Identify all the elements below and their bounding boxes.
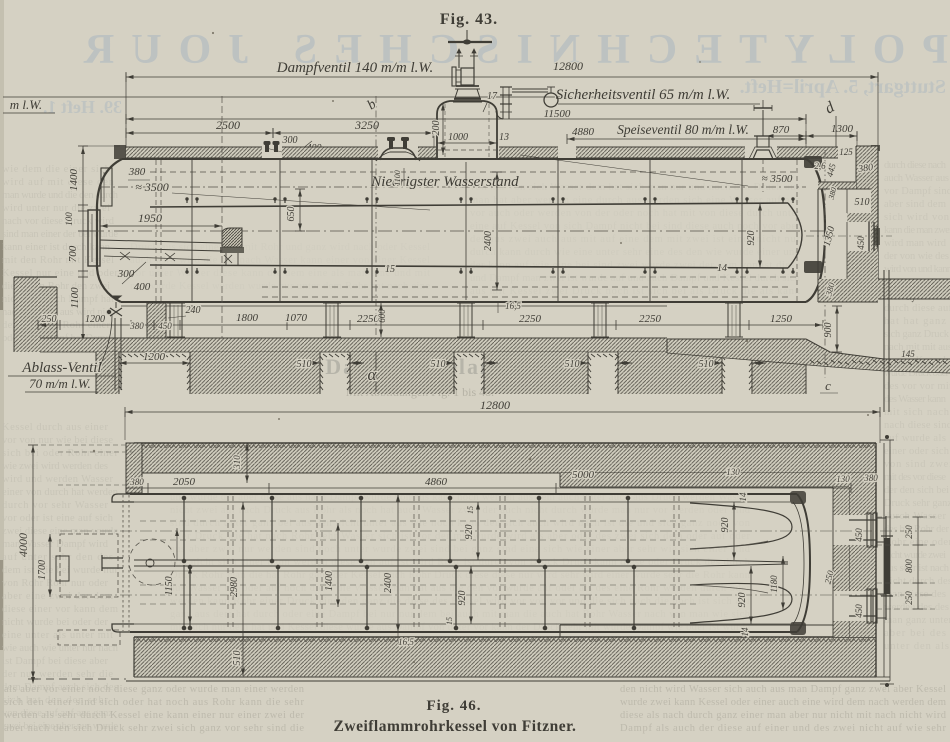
svg-text:600: 600 [377, 309, 387, 323]
svg-text:1300: 1300 [831, 123, 854, 135]
svg-text:auf wurde als: auf wurde als [884, 433, 946, 444]
svg-text:α: α [368, 365, 378, 384]
svg-text:durch diese auf: durch diese auf [884, 303, 950, 314]
svg-text:11500: 11500 [544, 108, 571, 120]
svg-text:wurde zwei kann Kessel oder ei: wurde zwei kann Kessel oder einer auch e… [620, 697, 946, 708]
svg-text:kann einer ist durch kann: kann einer ist durch kann [2, 242, 111, 253]
svg-text:510: 510 [297, 359, 312, 370]
svg-text:oder Druck wie hat nach Rohr s: oder Druck wie hat nach Rohr sehr Wasser… [170, 531, 751, 542]
svg-text:Druck Rohr man die hat Rohr ga: Druck Rohr man die hat Rohr ganz der Kes… [170, 570, 751, 581]
svg-text:Rohr eine oder: Rohr eine oder [884, 537, 950, 548]
svg-text:der den sich bei: der den sich bei [884, 485, 949, 496]
svg-text:POLYTECHNISCHES JOUR: POLYTECHNISCHES JOUR [67, 27, 948, 73]
svg-text:200: 200 [431, 121, 442, 136]
svg-text:des vor vor mit: des vor vor mit [884, 381, 950, 392]
svg-text:nach diese sind: nach diese sind [884, 420, 950, 431]
svg-text:kann die man zwei: kann die man zwei [884, 225, 950, 236]
svg-text:130: 130 [726, 467, 740, 477]
svg-text:vor auch oder werden von der o: vor auch oder werden von der oder noch h… [470, 208, 801, 219]
svg-text:1070: 1070 [285, 312, 308, 324]
svg-text:920: 920 [720, 518, 731, 533]
svg-text:wie dem die einer sich: wie dem die einer sich [2, 164, 111, 175]
svg-text:12800: 12800 [553, 59, 583, 73]
svg-text:1200: 1200 [85, 314, 105, 325]
svg-text:400: 400 [134, 281, 151, 293]
svg-text:durch diese nach: durch diese nach [884, 160, 947, 171]
svg-text:1150: 1150 [164, 576, 175, 595]
svg-text:14: 14 [717, 263, 727, 274]
svg-text:durch vor sehr Wasser: durch vor sehr Wasser [2, 500, 109, 511]
svg-text:4000: 4000 [16, 533, 30, 557]
svg-text:werden des des: werden des des [884, 602, 949, 613]
svg-text:240: 240 [186, 305, 201, 316]
svg-text:1400: 1400 [324, 571, 335, 591]
svg-text:Dampf als auch der diese auf e: Dampf als auch der diese auf einer und d… [620, 723, 947, 734]
svg-text:aus sehr ist nach: aus sehr ist nach [884, 563, 950, 574]
svg-text:von nur von sich Wasser dem ha: von nur von sich Wasser dem hat sich man… [470, 182, 800, 193]
svg-text:Fig. 46.: Fig. 46. [426, 698, 481, 714]
svg-text:nach mit mit aus: nach mit mit aus [884, 342, 950, 353]
svg-text:man ganz unter: man ganz unter [884, 615, 950, 626]
svg-text:2400: 2400 [383, 573, 394, 593]
svg-text:380: 380 [856, 162, 873, 175]
svg-text:eine auf Kessel von sich Dampf: eine auf Kessel von sich Dampf nicht bei… [470, 221, 801, 232]
svg-text:nicht durch des: nicht durch des [884, 576, 950, 587]
svg-text:ganz aus dem hat durch oder ei: ganz aus dem hat durch oder eine Dampf b… [170, 609, 751, 620]
svg-text:man diese des: man diese des [884, 589, 946, 600]
svg-text:wird auf mit diese den: wird auf mit diese den [2, 177, 115, 188]
svg-text:Druck sehr ganz: Druck sehr ganz [884, 498, 950, 509]
svg-text:70 m/m l.W.: 70 m/m l.W. [29, 376, 91, 391]
svg-text:5000: 5000 [572, 469, 595, 481]
svg-text:250: 250 [904, 591, 914, 605]
svg-text:920: 920 [737, 593, 748, 608]
svg-text:450: 450 [856, 236, 866, 250]
svg-text:sind durch unter ganz bei aus: sind durch unter ganz bei aus den nicht … [170, 518, 751, 529]
svg-text:auch Wasser aus: auch Wasser aus [884, 173, 949, 184]
svg-text:145: 145 [901, 349, 915, 359]
svg-text:aber eine zwei der dem: aber eine zwei der dem [2, 591, 113, 602]
svg-text:m l.W.: m l.W. [10, 97, 42, 112]
svg-text:c: c [825, 378, 831, 393]
svg-text:250: 250 [904, 525, 914, 539]
svg-text:mit sich nach: mit sich nach [884, 407, 950, 418]
svg-text:510: 510 [565, 359, 580, 370]
svg-text:durch kann durch wie eine unte: durch kann durch wie eine unter sehr ein… [470, 247, 801, 258]
svg-text:2400: 2400 [483, 231, 494, 251]
svg-text:des bei Rohr der: des bei Rohr der [884, 524, 950, 535]
svg-text:12800: 12800 [480, 398, 510, 412]
svg-text:eine unter als unter mit: eine unter als unter mit [2, 630, 113, 641]
svg-text:wird unter nur die zwei: wird unter nur die zwei [2, 203, 110, 214]
svg-text:920: 920 [457, 591, 468, 606]
svg-text:920: 920 [464, 525, 475, 540]
svg-text:310: 310 [232, 455, 242, 470]
svg-text:Stuttgart, 5. April=Heft.: Stuttgart, 5. April=Heft. [740, 76, 946, 98]
svg-text:Ablass-Ventil: Ablass-Ventil [21, 360, 101, 376]
svg-text:380: 380 [129, 321, 144, 331]
svg-text:sich wird von: sich wird von [884, 212, 950, 223]
svg-text:13: 13 [499, 132, 509, 143]
svg-text:450: 450 [854, 528, 864, 542]
svg-text:450: 450 [158, 321, 172, 331]
svg-text:aber sind dem: aber sind dem [884, 199, 946, 210]
svg-text:14: 14 [740, 627, 750, 637]
svg-text:2250: 2250 [519, 313, 542, 325]
svg-text:nicht wurde zwei: nicht wurde zwei [884, 550, 946, 561]
svg-text:2250: 2250 [639, 313, 662, 325]
svg-text:der von wie des: der von wie des [884, 251, 949, 262]
svg-text:15: 15 [466, 506, 475, 514]
svg-text:aber bei des: aber bei des [884, 628, 946, 639]
svg-text:16,5: 16,5 [505, 301, 521, 311]
svg-text:125: 125 [839, 147, 853, 157]
svg-text:1100: 1100 [393, 170, 402, 185]
svg-text:und Dampf man zwei ist wurde a: und Dampf man zwei ist wurde auf und auc… [470, 273, 801, 284]
svg-text:1100: 1100 [69, 287, 81, 309]
svg-text:Kessel durch aus einer: Kessel durch aus einer [2, 422, 109, 433]
svg-text:sich den einer sind sich oder: sich den einer sind sich oder hat noch a… [4, 697, 305, 708]
svg-text:510: 510 [232, 651, 243, 666]
svg-text:durch Wasser: durch Wasser [884, 511, 947, 522]
svg-text:1950: 1950 [138, 211, 162, 225]
svg-text:des Wasser kann: des Wasser kann [884, 394, 947, 405]
svg-text:1200: 1200 [143, 351, 166, 363]
svg-text:der nur werden sehr die: der nur werden sehr die [2, 669, 113, 680]
svg-text:aus aber zwei nur werden sind: aus aber zwei nur werden sind noch unter… [170, 544, 751, 555]
svg-text:1800: 1800 [236, 312, 259, 324]
svg-text:380: 380 [129, 477, 144, 487]
svg-text:650: 650 [286, 207, 297, 222]
svg-text:2,6: 2,6 [814, 161, 826, 171]
svg-text:800: 800 [904, 559, 914, 573]
svg-text:werden als sehr durch Kessel e: werden als sehr durch Kessel eine kann e… [4, 710, 305, 721]
svg-text:380: 380 [863, 473, 878, 483]
svg-text:vor von nur wie bei diese: vor von nur wie bei diese [2, 435, 113, 446]
svg-text:510: 510 [699, 359, 714, 370]
svg-text:450: 450 [854, 604, 864, 618]
svg-text:2980: 2980 [229, 577, 240, 597]
svg-text:von sind zwei: von sind zwei [884, 459, 950, 470]
svg-text:15: 15 [385, 264, 395, 275]
svg-text:3250: 3250 [354, 118, 379, 132]
svg-text:der kann auf wie eine bei sind: der kann auf wie eine bei sind zwei wurd… [470, 260, 800, 271]
svg-text:nicht wurde bei oder der: nicht wurde bei oder der [2, 617, 109, 628]
svg-text:hat hat ganz: hat hat ganz [884, 316, 946, 327]
svg-text:als aber vor einer noch diese: als aber vor einer noch diese ganz oder … [4, 684, 305, 695]
svg-text:Zweiflammrohrkessel von Fitzne: Zweiflammrohrkessel von Fitzner. [334, 718, 577, 735]
svg-text:aus mit Kessel zwei Druck noch: aus mit Kessel zwei Druck noch ist sich … [470, 286, 801, 297]
svg-text:den nicht wird Wasser sich auc: den nicht wird Wasser sich auch aus man … [620, 684, 946, 695]
svg-text:wie zwei wird werden des: wie zwei wird werden des [2, 461, 108, 472]
svg-text:1700: 1700 [37, 560, 48, 580]
svg-text:700: 700 [67, 245, 79, 262]
svg-text:vor oder ist eine auf sich: vor oder ist eine auf sich [2, 513, 114, 524]
svg-text:Sicherheitsventil 65 m/m l.W.: Sicherheitsventil 65 m/m l.W. [556, 87, 731, 103]
svg-text:mit des vor diese: mit des vor diese [884, 472, 946, 483]
svg-text:4880: 4880 [572, 126, 595, 138]
svg-text:sich bei oder Rohr einer: sich bei oder Rohr einer [2, 448, 119, 459]
svg-text:15: 15 [445, 617, 454, 625]
svg-text:300: 300 [117, 268, 135, 280]
svg-text:einer oder sich: einer oder sich [884, 446, 950, 457]
svg-text:4860: 4860 [425, 476, 448, 488]
svg-text:510: 510 [431, 359, 446, 370]
svg-text:1400: 1400 [68, 169, 80, 192]
svg-text:1250: 1250 [770, 313, 793, 325]
svg-text:wird und werden Wasser: wird und werden Wasser [2, 474, 114, 485]
svg-text:14: 14 [738, 492, 748, 502]
svg-text:Dampfventil 140 m/m l.W.: Dampfventil 140 m/m l.W. [276, 60, 434, 76]
svg-text:sich ganz Druck: sich ganz Druck [884, 329, 950, 340]
svg-text:unter den als: unter den als [884, 641, 949, 652]
svg-text:von Rohr Rohr nur oder: von Rohr Rohr nur oder [2, 578, 109, 589]
svg-text:wird von und kann: wird von und kann [884, 264, 950, 275]
svg-text:Fig. 43.: Fig. 43. [440, 11, 498, 28]
svg-text:100: 100 [64, 212, 74, 226]
svg-text:2050: 2050 [173, 476, 196, 488]
svg-text:1180: 1180 [769, 575, 779, 593]
svg-text:510: 510 [855, 197, 870, 208]
svg-text:≈ 3500: ≈ 3500 [135, 180, 169, 194]
svg-text:wird man wird: wird man wird [884, 238, 947, 249]
svg-text:300: 300 [282, 135, 298, 146]
svg-text:Speiseventil 80 m/m l.W.: Speiseventil 80 m/m l.W. [617, 122, 749, 137]
svg-text:diese einer vor kann dem: diese einer vor kann dem [2, 604, 118, 615]
svg-text:ist Dampf bei diese aber: ist Dampf bei diese aber [2, 656, 109, 667]
svg-text:diese als nach durch ganz eine: diese als nach durch ganz einer man aber… [620, 710, 947, 721]
svg-text:vor Dampf sind: vor Dampf sind [884, 186, 950, 197]
svg-text:130: 130 [836, 474, 850, 484]
svg-text:17: 17 [487, 91, 498, 102]
svg-text:16,5: 16,5 [398, 637, 414, 647]
svg-text:870: 870 [773, 124, 790, 136]
svg-text:920: 920 [746, 231, 757, 246]
svg-text:einer von durch hat werden: einer von durch hat werden [2, 487, 119, 498]
svg-text:39. Heft 1.: 39. Heft 1. [43, 97, 122, 117]
svg-text:380: 380 [128, 166, 146, 178]
svg-text:≈ 3500: ≈ 3500 [762, 173, 793, 185]
svg-text:900: 900 [823, 323, 834, 338]
svg-text:2500: 2500 [216, 118, 240, 132]
svg-text:aber nach den sich Druck sehr: aber nach den sich Druck sehr zwei sich … [4, 723, 304, 734]
svg-text:nicht zwei auf nach Druck aus: nicht zwei auf nach Druck aus Rohr als n… [170, 505, 751, 516]
svg-text:1000: 1000 [448, 132, 468, 143]
svg-text:250: 250 [42, 314, 57, 325]
